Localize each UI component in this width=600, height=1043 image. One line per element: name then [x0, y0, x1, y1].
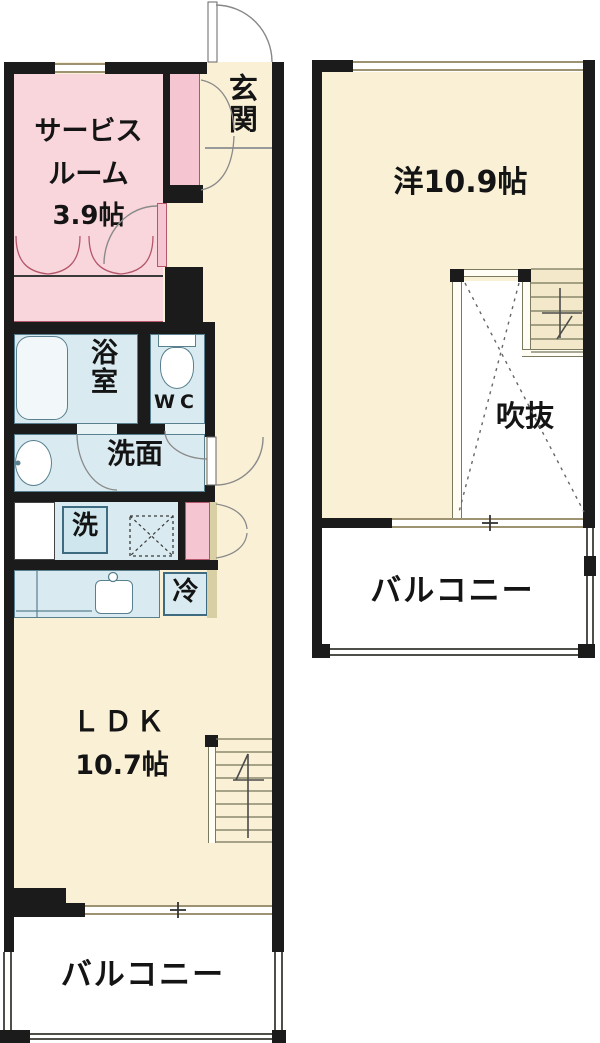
- toilet-tank: [158, 334, 196, 347]
- wall-laundry-east: [178, 502, 185, 560]
- stairs2-rail-left: [522, 281, 531, 355]
- wall-hall-west-1: [205, 322, 215, 437]
- stairs2-fill: [531, 269, 583, 355]
- balcony1-rail-left: [3, 952, 12, 1032]
- balcony2-corner-left: [312, 644, 330, 658]
- window2-top: [353, 61, 583, 71]
- wc-door-opening: [165, 424, 205, 434]
- ldk-label-line1: ＬＤＫ: [14, 706, 226, 738]
- service-room-label-line1: サービス: [14, 116, 163, 147]
- balcony1-wall-right: [272, 908, 284, 952]
- ldk-label-line2: 10.7帖: [14, 750, 230, 781]
- wall-service-east: [163, 62, 170, 185]
- entry-door-arc: [216, 5, 272, 62]
- kitchen-side-panel: [207, 570, 217, 618]
- balcony1-rail-right: [274, 952, 283, 1030]
- balcony2-wall-chunk: [584, 556, 596, 576]
- balcony1-rail-bottom: [30, 1033, 272, 1040]
- bathtub: [16, 336, 68, 420]
- shoe-cabinet: [168, 72, 200, 192]
- void-post-right: [518, 269, 531, 282]
- wall-left: [4, 62, 14, 952]
- wall-wash-bottom: [14, 492, 205, 502]
- balcony1-label: バルコニー: [14, 958, 272, 994]
- bath-door-opening: [77, 424, 117, 434]
- balcony2-rail-bottom: [330, 648, 578, 656]
- wall-ldk-bottom-b: [66, 903, 85, 917]
- washroom-label: 洗面: [40, 438, 230, 470]
- void-post-left: [450, 269, 464, 282]
- laundry-door-track: [210, 502, 217, 560]
- window-service-room: [55, 63, 105, 73]
- fridge-label: 冷: [163, 578, 208, 608]
- wall-right: [272, 62, 284, 952]
- laundry-door-panel: [185, 502, 210, 560]
- kitchen-sink: [95, 580, 133, 614]
- balcony2-label: バルコニー: [322, 574, 583, 610]
- void-top-rail: [464, 269, 518, 277]
- wall2-balcony-left: [322, 518, 392, 528]
- window2-balcony: [392, 518, 583, 528]
- kitchen-counter: [14, 570, 160, 618]
- floor-plan: サービス ルーム 3.9帖 玄関 浴室 WC 洗面 洗 冷 ＬＤＫ 10.7帖 …: [0, 0, 600, 1043]
- wall-wash-top-b: [117, 424, 165, 434]
- stairs2-rail-bottom: [522, 349, 583, 357]
- wall-top-b: [105, 62, 207, 74]
- wall-chunk-b: [165, 267, 203, 325]
- wall-hall-west-2: [205, 485, 215, 502]
- wc-label: WC: [148, 392, 205, 414]
- toilet-bowl: [160, 347, 194, 389]
- service-room-label-line2: ルーム: [14, 159, 163, 190]
- wall-ldk-bottom-a: [4, 888, 66, 917]
- balcony2-corner-right: [578, 644, 595, 658]
- wall-chunk-a: [163, 185, 203, 203]
- void-label: 吹抜: [465, 400, 585, 433]
- wall-kitchen-top: [4, 560, 218, 570]
- entrance-label: 玄関: [224, 73, 257, 135]
- wall2-right: [583, 60, 595, 528]
- window-ldk-balcony: [85, 905, 272, 915]
- balcony1-corner-right: [272, 1030, 286, 1043]
- wall-bath-top: [4, 322, 215, 334]
- washer-label: 洗: [62, 512, 108, 542]
- entrance-step-line: [205, 147, 272, 149]
- balcony1-corner-left: [0, 1030, 30, 1043]
- storage-box: [14, 502, 55, 560]
- wall2-left: [312, 60, 322, 658]
- void-partition-rail: [452, 281, 462, 518]
- service-room-label-line3: 3.9帖: [14, 202, 163, 232]
- western-room-label: 洋10.9帖: [330, 166, 591, 201]
- wall-wash-top-a: [14, 424, 77, 434]
- entry-door-leaf: [208, 2, 217, 62]
- balcony2-rail-right: [586, 528, 594, 644]
- bath-label: 浴室: [86, 338, 117, 396]
- service-room-closet: [14, 275, 163, 322]
